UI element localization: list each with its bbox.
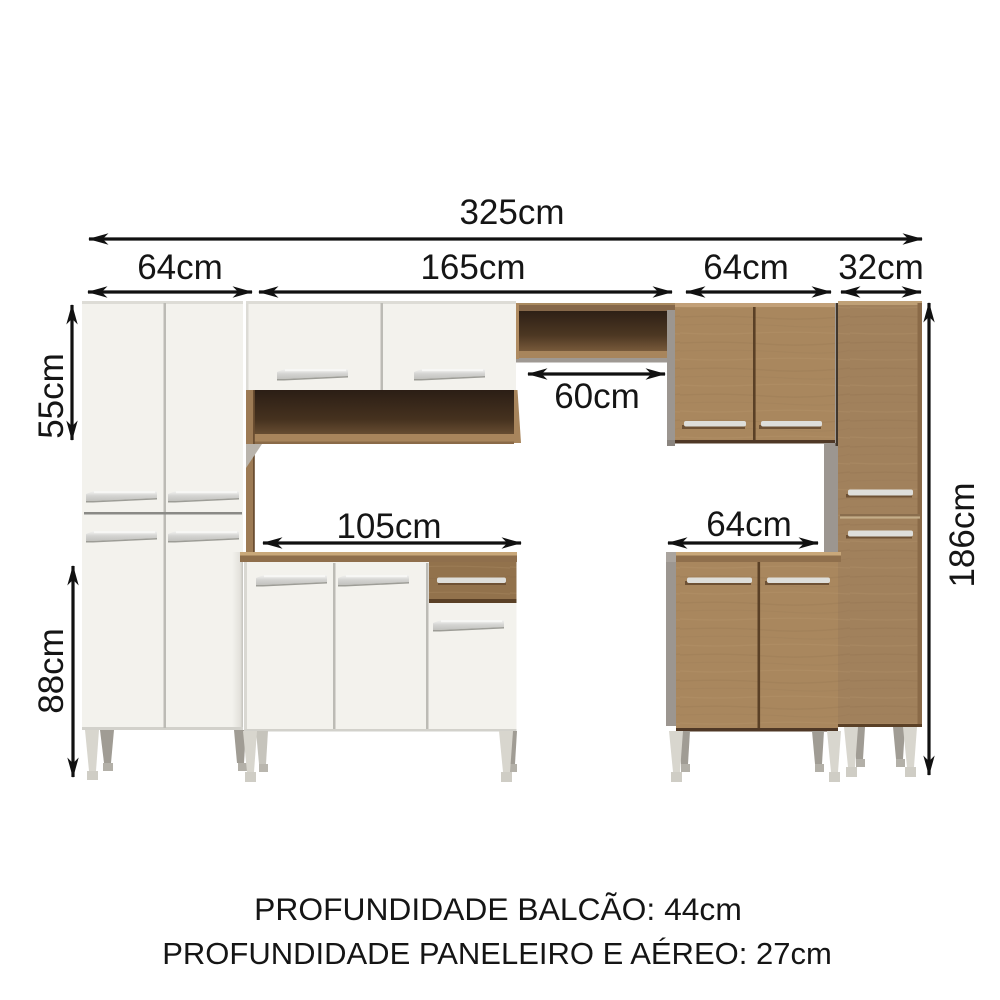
svg-text:186cm: 186cm	[943, 482, 982, 587]
svg-text:60cm: 60cm	[554, 377, 640, 416]
svg-text:64cm: 64cm	[706, 505, 792, 544]
svg-text:325cm: 325cm	[459, 193, 564, 232]
svg-text:PROFUNDIDADE BALCÃO: 44cm: PROFUNDIDADE BALCÃO: 44cm	[254, 891, 742, 927]
svg-text:88cm: 88cm	[32, 628, 71, 714]
svg-text:32cm: 32cm	[838, 248, 924, 287]
svg-text:165cm: 165cm	[420, 248, 525, 287]
svg-text:105cm: 105cm	[336, 507, 441, 546]
svg-text:55cm: 55cm	[32, 353, 71, 439]
svg-text:64cm: 64cm	[703, 248, 789, 287]
svg-text:PROFUNDIDADE PANELEIRO E AÉREO: PROFUNDIDADE PANELEIRO E AÉREO: 27cm	[162, 936, 832, 971]
svg-text:64cm: 64cm	[137, 248, 223, 287]
